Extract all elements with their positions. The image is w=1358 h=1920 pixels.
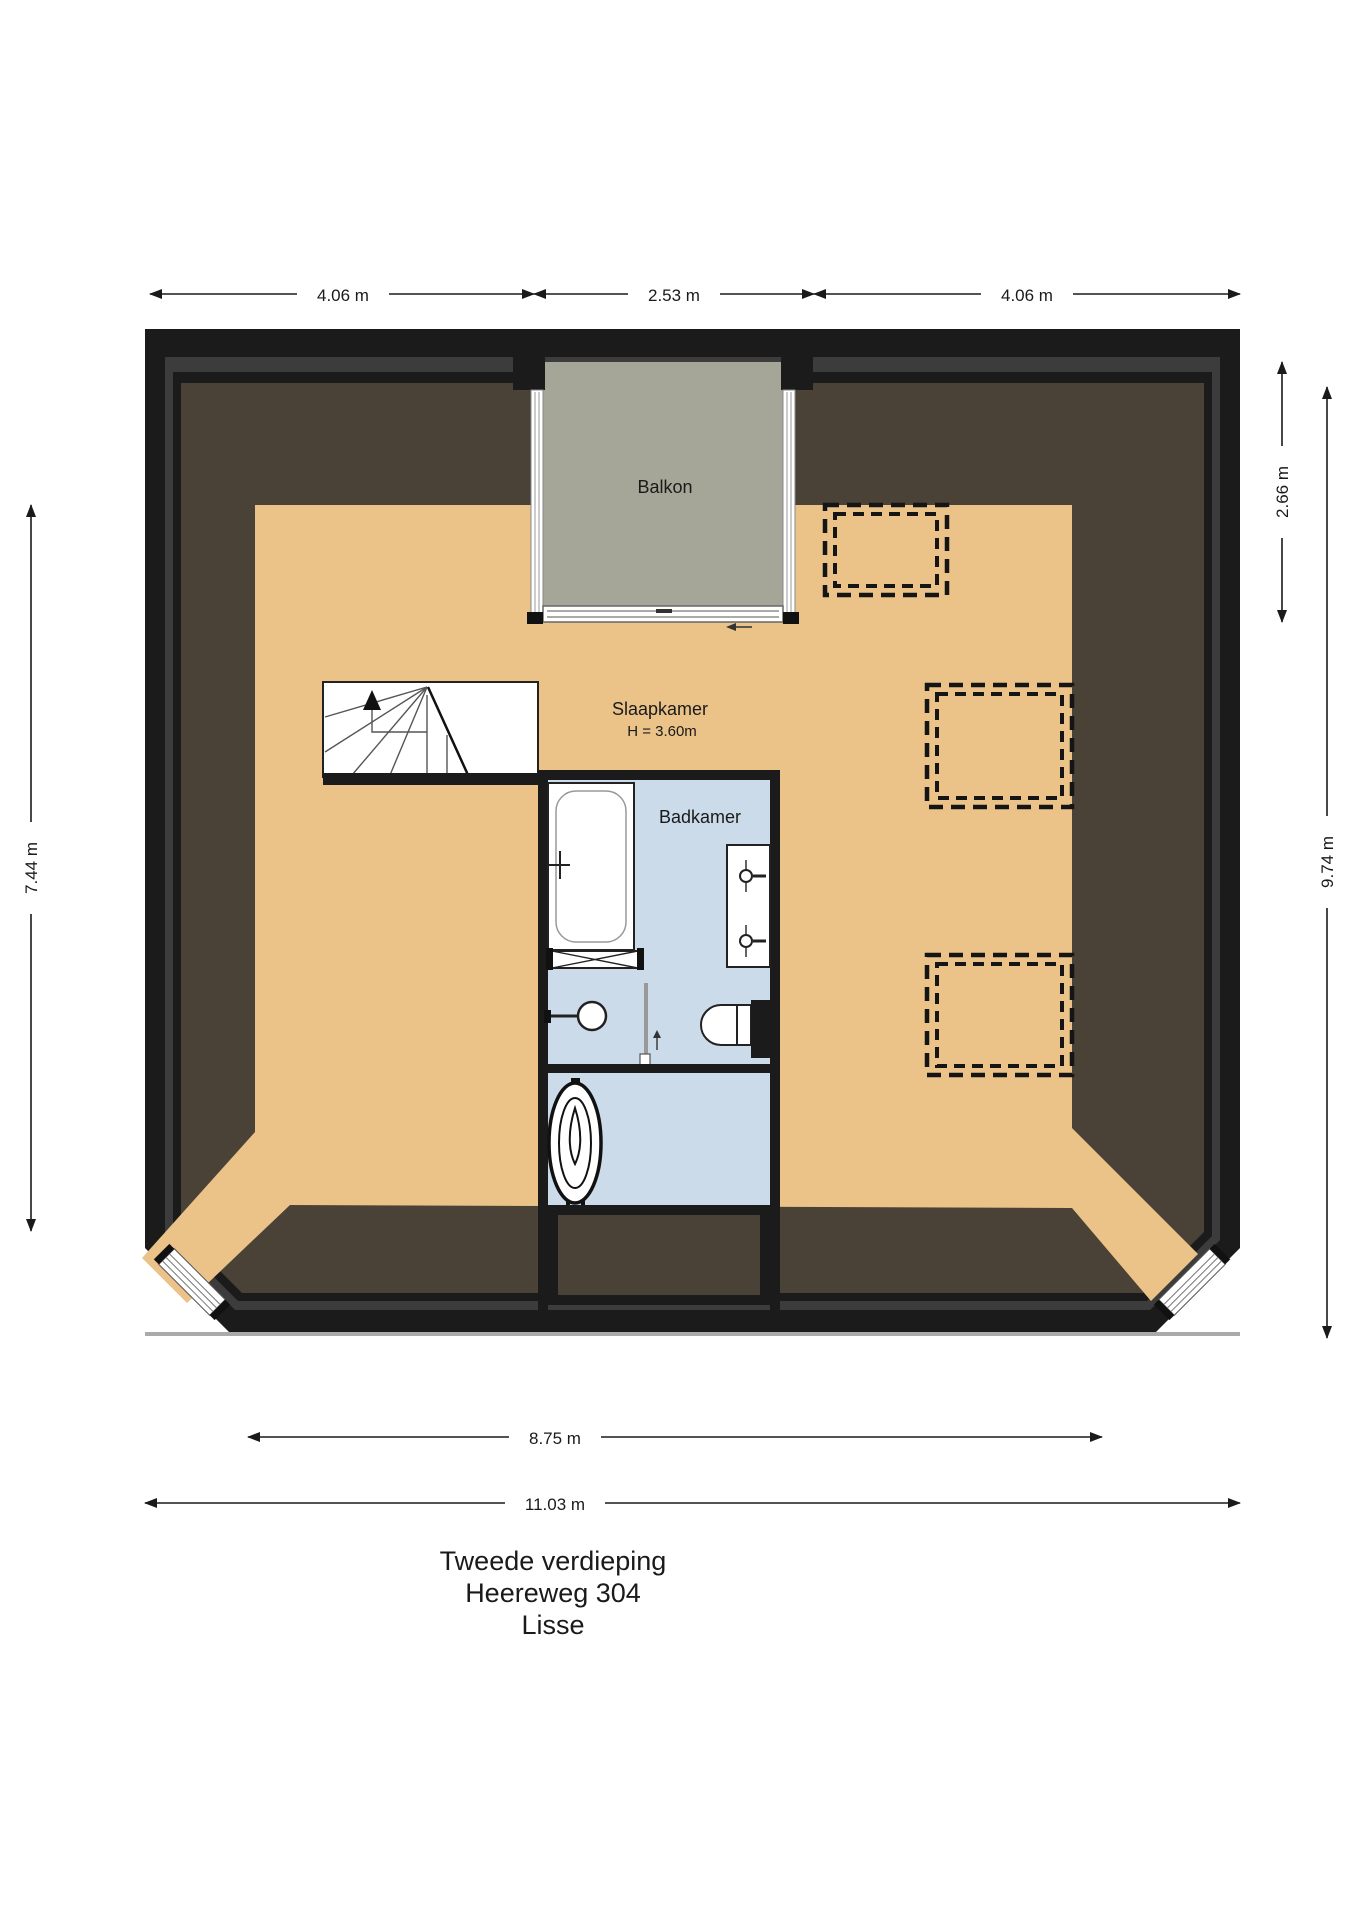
bathroom-label: Badkamer: [659, 807, 741, 827]
staircase: [323, 682, 545, 785]
sliding-door: [527, 606, 799, 624]
stair-bottom-wall: [323, 773, 545, 785]
balcony-label: Balkon: [637, 477, 692, 497]
title-address: Heereweg 304: [465, 1578, 641, 1608]
dim-top-left: 4.06 m: [150, 281, 534, 307]
dim-bottom-inner: 8.75 m: [248, 1424, 1102, 1450]
svg-text:2.53 m: 2.53 m: [648, 286, 700, 305]
bathroom: Badkamer: [538, 770, 780, 1312]
title-city: Lisse: [521, 1610, 584, 1640]
svg-text:11.03 m: 11.03 m: [525, 1495, 585, 1514]
dim-bottom-full: 11.03 m: [145, 1490, 1240, 1516]
bedroom-label: Slaapkamer: [612, 699, 708, 719]
floor-plan-page: Balkon: [0, 0, 1358, 1920]
title-floor: Tweede verdieping: [440, 1546, 667, 1576]
balcony-railing-right: [783, 390, 795, 618]
duct-block: [751, 1000, 778, 1058]
title-block: Tweede verdieping Heereweg 304 Lisse: [440, 1546, 667, 1640]
shower-head: [578, 1002, 606, 1030]
balcony-wall-post-left: [513, 329, 545, 390]
balcony-railing-left: [531, 390, 543, 618]
radiator: [546, 948, 644, 970]
vanity-sinks: [727, 845, 770, 967]
door-jamb-right: [783, 612, 799, 624]
door-jamb-left: [527, 612, 543, 624]
dim-top-right: 4.06 m: [814, 281, 1240, 307]
svg-text:7.44 m: 7.44 m: [22, 842, 41, 894]
wall-extension-right: [770, 1212, 780, 1312]
bathtub: [548, 783, 634, 950]
bedroom-height-label: H = 3.60m: [627, 723, 697, 740]
dim-right-full: 9.74 m: [1314, 387, 1340, 1338]
svg-text:4.06 m: 4.06 m: [1001, 286, 1053, 305]
wall-extension-left: [538, 1212, 548, 1312]
dim-left: 7.44 m: [18, 505, 44, 1231]
balcony-wall-post-right: [781, 329, 813, 390]
balcony: Balkon: [513, 329, 813, 631]
svg-text:9.74 m: 9.74 m: [1318, 836, 1337, 888]
bottom-center-panel: [558, 1215, 760, 1295]
dim-right-upper: 2.66 m: [1269, 362, 1295, 622]
dim-top-middle: 2.53 m: [534, 281, 814, 307]
floor-plan-svg: Balkon: [0, 0, 1358, 1920]
bathroom-partition-wall: [548, 1064, 770, 1073]
svg-text:2.66 m: 2.66 m: [1273, 466, 1292, 518]
building-ground-shadow: [145, 1332, 1240, 1336]
svg-text:4.06 m: 4.06 m: [317, 286, 369, 305]
svg-text:8.75 m: 8.75 m: [529, 1429, 581, 1448]
